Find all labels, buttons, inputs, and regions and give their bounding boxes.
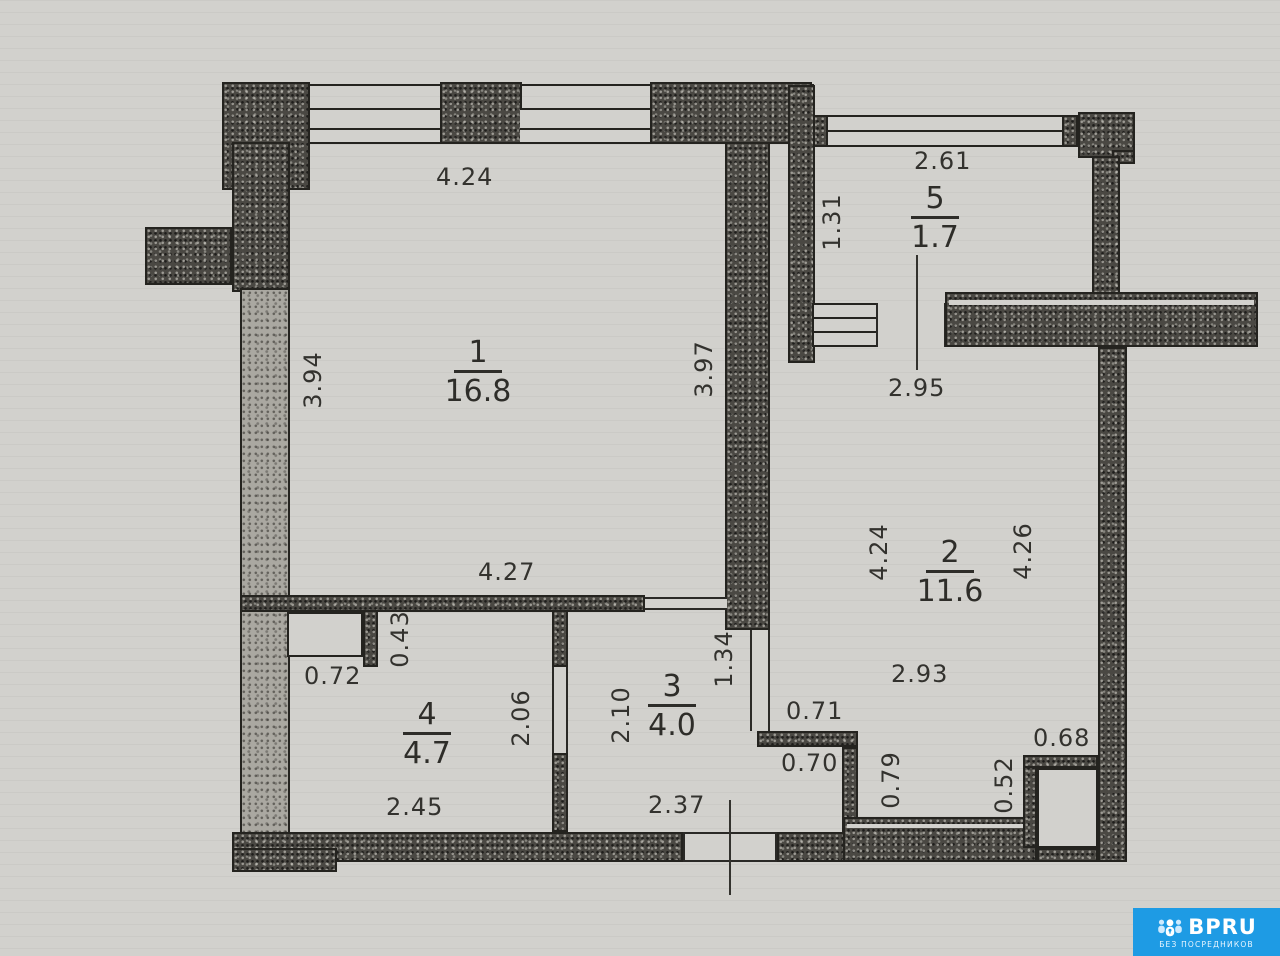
wall-left-protrusion	[145, 227, 232, 285]
logo-tagline: БЕЗ ПОСРЕДНИКОВ	[1159, 940, 1254, 949]
dim-room2-left: 4.24	[865, 512, 893, 592]
wall-room4-room3-bottom	[552, 753, 568, 832]
room-number: 2	[940, 536, 959, 569]
wall-shaft-bottom	[1037, 848, 1098, 862]
fraction-rule	[648, 704, 696, 707]
dim-room1-bottom: 4.27	[478, 558, 535, 586]
dim-room1-top: 4.24	[436, 163, 493, 191]
wall-shaft-top	[1023, 755, 1098, 768]
room-label-5: 5 1.7	[885, 182, 985, 254]
window-sill-room2-balcony	[812, 303, 878, 347]
floor-plan: 1 16.8 2 11.6 3 4.0 4 4.7 5 1.7 4.24 2.6…	[0, 0, 1280, 956]
dim-shaft-top: 0.68	[1033, 724, 1090, 752]
room-number: 1	[468, 336, 487, 369]
wall-left-lower	[240, 288, 290, 834]
wall-shaft-left	[1023, 755, 1037, 848]
wall-balcony-right	[1092, 156, 1120, 294]
dim-step-bottom: 0.70	[781, 749, 838, 777]
dim-room2-bottom: 2.93	[891, 660, 948, 688]
dim-niche-height: 0.43	[386, 599, 414, 679]
room-area: 4.0	[648, 709, 696, 742]
dim-notch-left: 0.79	[877, 740, 905, 820]
door-room3-room2	[750, 630, 770, 731]
window-room1-left	[310, 108, 442, 144]
logo-brand-text: BPRU	[1188, 915, 1257, 939]
wall-room1-right	[725, 142, 770, 630]
fraction-rule	[911, 216, 959, 219]
room-label-4: 4 4.7	[377, 698, 477, 770]
dim-balcony-wall: 2.95	[888, 374, 945, 402]
dim-room3-bottom: 2.37	[648, 791, 705, 819]
wall-room1-bottom	[240, 595, 645, 612]
dim-line-balcony-door	[916, 255, 918, 370]
dim-room4-bottom: 2.45	[386, 793, 443, 821]
dim-line-entrance	[729, 800, 731, 895]
wall-top-pier	[440, 82, 522, 144]
shaft	[1037, 768, 1098, 848]
balcony-door-opening	[876, 303, 946, 347]
door-room1-room3	[645, 597, 727, 610]
wall-face-gap	[949, 300, 1254, 305]
wall-room4-room3-top	[552, 610, 568, 667]
room-number: 4	[417, 698, 436, 731]
niche-room4	[287, 612, 363, 657]
dim-room1-left: 3.94	[299, 340, 327, 420]
wall-bottom-ledge	[232, 848, 337, 872]
room-label-2: 2 11.6	[900, 536, 1000, 608]
dim-room1-right: 3.97	[690, 329, 718, 409]
room-number: 3	[662, 670, 681, 703]
balcony-glazing	[812, 115, 1078, 147]
dim-room2-right: 4.26	[1009, 511, 1037, 591]
people-icon	[1156, 918, 1184, 937]
window-room1-right	[520, 108, 652, 144]
dim-room3-left: 2.10	[607, 675, 635, 755]
dim-balcony-top: 2.61	[914, 147, 971, 175]
balcony-glazing-right-stub	[1062, 115, 1078, 147]
wall-right	[1098, 347, 1127, 862]
wall-balcony-left	[788, 85, 815, 363]
fraction-rule	[454, 370, 502, 373]
room-label-1: 1 16.8	[428, 336, 528, 408]
dim-room3-right: 1.34	[710, 619, 738, 699]
room-area: 16.8	[445, 375, 512, 408]
wall-niche-pier	[363, 610, 378, 667]
wall-step-horizontal	[757, 731, 858, 747]
room-number: 5	[925, 182, 944, 215]
room-area: 1.7	[911, 221, 959, 254]
dim-step-top: 0.71	[786, 697, 843, 725]
fraction-rule	[926, 570, 974, 573]
fraction-rule	[403, 732, 451, 735]
room-label-3: 3 4.0	[622, 670, 722, 742]
dim-room4-right: 2.06	[507, 678, 535, 758]
bpru-logo: BPRU БЕЗ ПОСРЕДНИКОВ	[1133, 908, 1280, 956]
room-area: 4.7	[403, 737, 451, 770]
dim-shaft-left: 0.52	[990, 745, 1018, 825]
wall-left-upper	[232, 142, 290, 292]
dim-balcony-left: 1.31	[818, 182, 846, 262]
room-area: 11.6	[917, 575, 984, 608]
door-room4-room3	[552, 667, 568, 753]
dim-niche-width: 0.72	[304, 662, 361, 690]
